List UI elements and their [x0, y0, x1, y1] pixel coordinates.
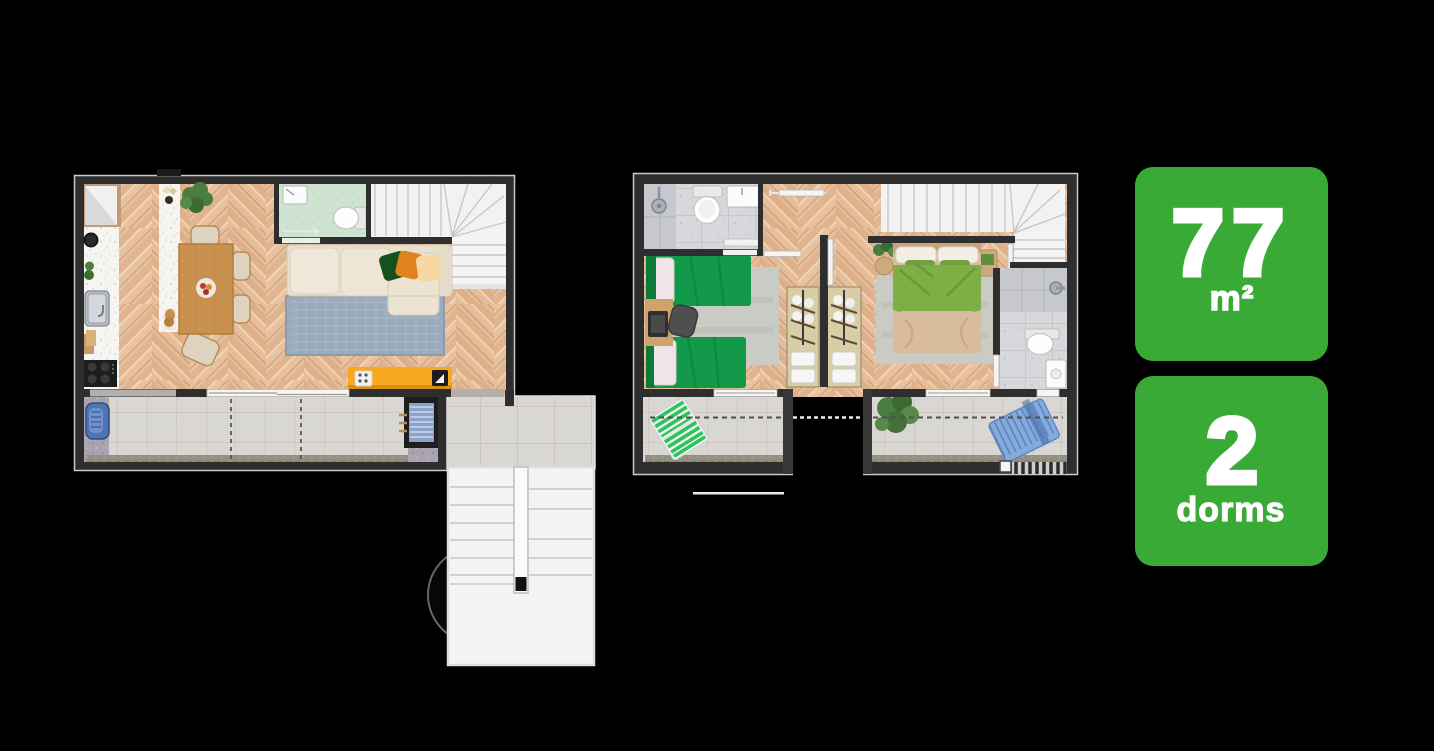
svg-text:2: 2: [1206, 398, 1258, 503]
svg-text:m²: m²: [1210, 279, 1255, 318]
svg-text:dorms: dorms: [1177, 491, 1286, 529]
